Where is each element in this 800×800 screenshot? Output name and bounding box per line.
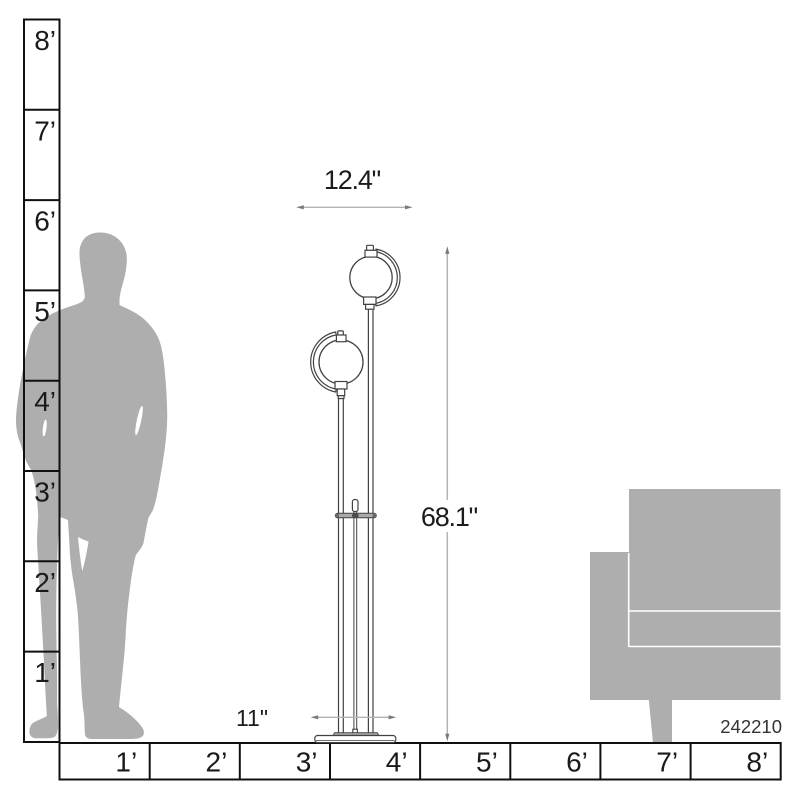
- svg-text:11": 11": [236, 705, 268, 731]
- svg-text:2’: 2’: [206, 747, 228, 778]
- svg-text:242210: 242210: [720, 716, 782, 737]
- svg-text:8’: 8’: [746, 747, 768, 778]
- svg-text:4’: 4’: [386, 747, 408, 778]
- svg-text:1’: 1’: [115, 747, 137, 778]
- svg-text:3’: 3’: [296, 747, 318, 778]
- svg-text:1’: 1’: [34, 657, 56, 688]
- svg-text:5’: 5’: [34, 296, 56, 327]
- svg-text:12.4": 12.4": [324, 165, 381, 195]
- svg-text:3’: 3’: [34, 477, 56, 508]
- svg-text:5’: 5’: [476, 747, 498, 778]
- svg-text:7’: 7’: [34, 115, 56, 146]
- svg-text:68.1": 68.1": [421, 502, 478, 532]
- svg-text:6’: 6’: [34, 206, 56, 237]
- svg-text:4’: 4’: [34, 386, 56, 417]
- svg-text:6’: 6’: [566, 747, 588, 778]
- svg-text:2’: 2’: [34, 567, 56, 598]
- svg-text:8’: 8’: [34, 25, 56, 56]
- svg-text:7’: 7’: [656, 747, 678, 778]
